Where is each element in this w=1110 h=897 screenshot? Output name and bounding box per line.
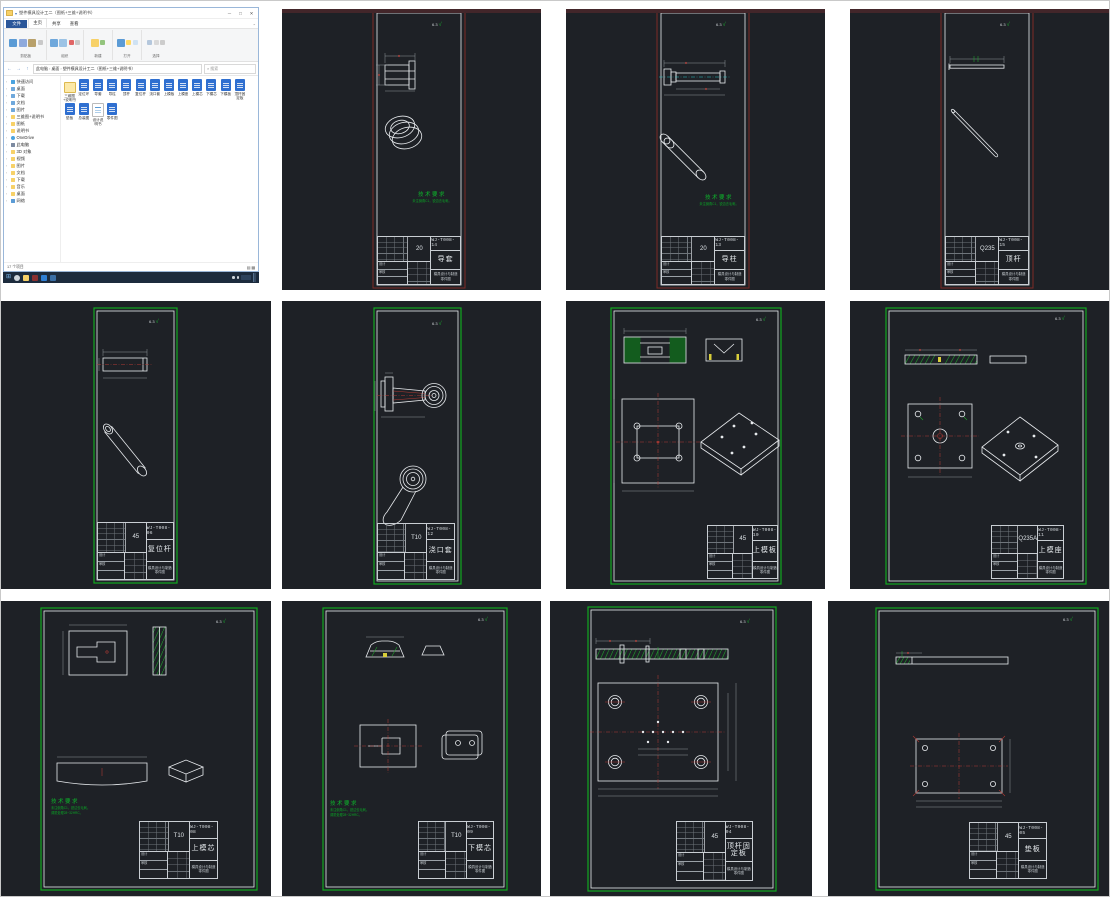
drawing-number: WJ-T008-15 [999,237,1028,251]
chevron-icon[interactable]: › [6,129,9,133]
nav-item[interactable]: › 桌面 [6,85,60,92]
section-view-1 [624,337,686,363]
nav-item-label: 快速访问 [17,79,34,85]
nav-item-label: 视频 [17,156,25,162]
search-input[interactable]: ⌕ 搜索 [204,64,256,74]
chevron-icon[interactable]: › [6,136,9,140]
folder-icon [11,178,16,182]
open-icon[interactable] [126,40,131,45]
profile-view [57,757,147,785]
organization: 模具设计与制造零件图 [715,270,744,284]
item-count: 17 个项目 [7,265,24,270]
folder-icon [11,108,16,112]
material-cell: T10 [406,524,426,552]
nav-item-label: 桌面 [17,191,25,197]
drawing-canvas [282,601,541,897]
ribbon-group-label: 选择 [152,54,159,59]
maximize-button[interactable]: □ [236,9,245,18]
folder-icon [11,164,16,168]
nav-item-label: 图片 [17,107,25,113]
plan-view [901,397,979,477]
title-block: 45 设计审核 WJ-T008-10 上模板 模具设计与制造零件图 [707,525,778,579]
folder-icon [11,143,16,147]
file-item[interactable]: 三维图+说明书 [63,79,76,102]
navigation-pane: › 快速访问 › 桌面 › 下载 › 文档 [4,76,61,262]
file-name: 复位杆 [135,92,146,96]
file-name: 上模座 [178,92,189,96]
search-icon[interactable] [14,275,20,281]
technical-notes: 技术要求 未注倒角C1，锐边去毛刺。 [696,193,742,206]
chevron-icon[interactable]: › [6,178,9,182]
organization: 模具设计与制造零件图 [753,562,777,578]
tray-icon[interactable] [237,276,240,279]
material-cell: T10 [169,822,189,851]
window-edge [566,9,825,13]
file-name: 下模芯 [206,92,217,96]
chevron-icon[interactable]: › [6,150,9,154]
nav-item[interactable]: › 此电脑 [6,141,60,148]
file-icon [235,79,245,91]
tray-icon[interactable] [232,276,235,279]
folder-icon [11,136,16,140]
nav-item[interactable]: › 快速访问 [6,78,60,85]
nav-item[interactable]: › 图片 [6,106,60,113]
file-item[interactable]: 导套 [91,79,104,96]
forward-button[interactable]: → [15,66,22,72]
nav-item[interactable]: › 图片 [6,162,60,169]
organization: 模具设计与制造零件图 [431,270,460,284]
paste-icon[interactable] [28,39,36,47]
plan-view [614,393,700,491]
start-button[interactable]: ⊞ [6,272,11,283]
surface-roughness-mark: 6.3√ [432,321,442,327]
title-block: 45 设计审核 WJ-T008-06 复位杆 模具设计与制造零件图 [97,522,174,580]
iso-view [102,422,149,477]
cad-sheet-fuweigan: 6.3√ 45 设计审核 WJ-T008-06 复位杆 模具设计与制造零件图 [1,301,271,589]
part-name: 下模芯 [467,839,493,861]
organization: 模具设计与制造零件图 [467,861,493,878]
window-edge [282,9,541,13]
search-placeholder: 搜索 [210,66,218,72]
chevron-right-icon: › [49,66,50,71]
nav-item-label: 文档 [17,100,25,106]
section-strip-2 [990,356,1026,363]
nav-item[interactable]: › 图纸 [6,120,60,127]
chevron-icon[interactable]: › [6,199,9,203]
material-cell: 45 [705,822,725,852]
nav-item-label: 桌面 [17,86,25,92]
breadcrumb[interactable]: 桌面 [51,66,59,72]
new-item-icon[interactable] [100,40,105,45]
title-block: T10 设计审核 WJ-T008-12 浇口套 模具设计与制造零件图 [377,523,455,580]
surface-roughness-mark: 6.3√ [1000,22,1010,28]
file-icon [65,103,75,115]
browser-icon[interactable] [41,275,47,281]
material-cell: 20 [408,237,430,261]
search-icon: ⌕ [207,66,209,71]
part-name: 导柱 [715,251,744,270]
chevron-icon[interactable]: › [6,171,9,175]
copy-icon[interactable] [19,39,27,47]
quick-access-toolbar[interactable]: ▾ [15,11,17,16]
surface-roughness-mark: 6.3√ [216,619,226,625]
title-block: Q235A 设计审核 WJ-T008-11 上模座 模具设计与制造零件图 [991,525,1064,579]
drawing-canvas [850,301,1110,589]
iso-view [442,731,482,759]
screenshot-collage: ▾ 塑件模具设计工二（图纸+三维+说明书） ─ □ ✕ 文件 主页 共享 查看 … [0,0,1110,897]
cad-sheet-dianban: 6.3√ 45 设计审核 WJ-T008-05 垫板 模具设计与制造零件图 [828,601,1110,897]
chevron-icon[interactable]: › [6,192,9,196]
cad-sheet-shangmoban: 6.3√ 45 设计审核 WJ-T008-10 上模板 模具设计与制造零件图 [566,301,825,589]
folder-icon [11,94,16,98]
plan-view [63,625,127,675]
iso-view [658,132,708,182]
close-button[interactable]: ✕ [247,9,256,18]
minimize-button[interactable]: ─ [225,9,234,18]
technical-notes: 技术要求 未注倒角C1，锐边去毛刺。 调质处理28~32HRC。 [51,797,131,815]
title-block: 45 设计审核 WJ-T008-04 顶杆固定板 模具设计与制造零件图 [676,821,753,881]
status-bar: 17 个项目 ▤ ▦ [4,262,258,271]
edit-icon[interactable] [133,40,138,45]
nav-item-label: 此电脑 [17,142,30,148]
material-cell: 45 [998,823,1018,851]
explorer-taskbar-icon[interactable] [23,275,29,281]
file-icon [64,82,76,93]
technical-notes: 技术要求 未注倒角C1，锐边去毛刺。 [408,190,456,203]
file-item[interactable]: 下模芯 [205,79,218,96]
iso-view [169,760,203,782]
profile-view-1 [366,637,404,657]
file-item[interactable]: 总装图 [77,103,90,120]
ribbon-group-label: 剪贴板 [20,54,31,59]
section-view-2 [706,339,742,361]
nav-item[interactable]: › OneDrive [6,134,60,141]
move-to-icon[interactable] [50,39,58,47]
file-item[interactable]: 顶杆 [120,79,133,96]
chevron-icon[interactable]: › [6,87,9,91]
file-item[interactable]: 垫板 [63,103,76,120]
file-name: 零件图 [107,116,118,120]
profile-view-2 [422,646,444,655]
file-item[interactable]: 上模芯 [191,79,204,96]
select-all-icon[interactable] [147,40,152,45]
file-name: 设计说明书 [91,118,104,126]
rename-icon[interactable] [75,40,80,45]
file-item[interactable]: 下模板 [219,79,232,96]
surface-roughness-mark: 6.3√ [716,22,726,28]
drawing-number: WJ-T008-08 [190,822,217,839]
cad-sheet-shangmozuo: 6.3√ Q235A 设计审核 WJ-T008-11 上模座 模具设计与制造零件… [850,301,1110,589]
nav-item-label: 3D 对象 [17,149,32,155]
cad-sheet-shangmoxin: 6.3√ 技术要求 未注倒角C1，锐边去毛刺。 调质处理28~32HRC。 T1… [1,601,271,897]
file-icon [178,79,188,91]
drawing-number: WJ-T008-05 [1019,823,1046,839]
part-name: 上模芯 [190,839,217,861]
file-icon [206,79,216,91]
file-name: 顶杆 [123,92,130,96]
chevron-right-icon: › [60,66,61,71]
section-strip-1 [905,349,977,364]
cad-sheet-dinggan: 6.3√ Q235 设计审核 WJ-T008-15 顶杆 模具设计与制造零件图 [850,9,1110,290]
part-name: 浇口套 [427,540,454,562]
file-name: 导柱 [109,92,116,96]
breadcrumb[interactable]: 塑件模具设计工二（图纸+三维+说明书） [63,66,136,72]
chevron-icon[interactable]: › [6,115,9,119]
section-view [596,638,728,663]
ribbon-group-clipboard: 剪贴板 [6,30,47,60]
organization: 模具设计与制造零件图 [427,562,454,579]
iso-view [951,109,998,157]
address-row: ← → ↑ 此电脑 › 桌面 › 塑件模具设计工二（图纸+三维+说明书） ⌕ 搜… [4,62,258,76]
drawing-number: WJ-T008-06 [147,523,173,540]
file-icon [136,79,146,91]
folder-icon [11,185,16,189]
drawing-number: WJ-T008-13 [715,237,744,251]
file-item[interactable]: 上模板 [162,79,175,96]
chevron-icon[interactable]: › [6,80,9,84]
chevron-icon[interactable]: › [6,164,9,168]
nav-item-label: 音乐 [17,184,25,190]
file-icon [164,79,174,91]
iso-view [701,413,779,475]
copy-to-icon[interactable] [59,39,67,47]
properties-icon[interactable] [117,39,125,47]
file-item[interactable]: 复位杆 [134,79,147,96]
side-view [153,627,166,675]
cad-sheet-daozhu: 6.3√ 技术要求 未注倒角C1，锐边去毛刺。 20 设计审核 WJ-T008-… [566,9,825,290]
folder-icon [11,80,16,84]
ribbon-group-open: 打开 [113,30,142,60]
nav-item[interactable]: › 文档 [6,169,60,176]
ribbon-group-organize: 组织 [47,30,85,60]
nav-item[interactable]: › 文档 [6,99,60,106]
new-folder-icon[interactable] [91,39,99,47]
ribbon-group-label: 新建 [94,54,101,59]
drawing-number: WJ-T008-12 [427,524,454,540]
organization: 模具设计与制造零件图 [1019,861,1046,878]
folder-icon [11,157,16,161]
file-item[interactable]: 顶杆固定板 [233,79,246,100]
file-icon [107,103,117,115]
title-block: T10 设计审核 WJ-T008-08 上模芯 模具设计与制造零件图 [139,821,218,879]
file-item[interactable]: 浇口套 [148,79,161,96]
organization: 模具设计与制造零件图 [999,270,1028,284]
file-item[interactable]: 导柱 [106,79,119,96]
nav-item-label: 下载 [17,93,25,99]
chevron-icon[interactable]: › [6,108,9,112]
plan-view [590,675,736,796]
organization: 模具设计与制造零件图 [190,861,217,878]
file-name: 三维图+说明书 [63,94,76,102]
nav-item-label: 文档 [17,170,25,176]
nav-item[interactable]: › 下载 [6,92,60,99]
invert-selection-icon[interactable] [160,40,165,45]
material-cell: 45 [126,523,146,552]
folder-icon [11,150,16,154]
address-bar[interactable]: 此电脑 › 桌面 › 塑件模具设计工二（图纸+三维+说明书） [33,64,202,74]
drawing-canvas [566,301,825,589]
up-button[interactable]: ↑ [24,66,31,72]
cad-app-icon[interactable] [32,275,38,281]
file-icon [79,79,89,91]
ribbon-group-new: 新建 [84,30,113,60]
file-icon [92,103,104,117]
surface-roughness-mark: 6.3√ [1055,316,1065,322]
front-view [381,377,425,411]
nav-item[interactable]: › 网络 [6,197,60,204]
clock[interactable] [241,275,251,280]
show-desktop-button[interactable] [253,273,256,282]
cad-sheet-dingganguban: 6.3√ 45 设计审核 WJ-T008-04 顶杆固定板 模具设计与制造零件图 [550,601,812,897]
chevron-icon[interactable]: › [6,185,9,189]
cad-sheet-jiaokoutao: 6.3√ T10 设计审核 WJ-T008-12 浇口套 模具设计与制造零件图 [282,301,541,589]
part-name: 导套 [431,251,460,270]
technical-notes: 技术要求 未注倒角C1，锐边去毛刺。 调质处理28~32HRC。 [330,799,410,817]
part-name: 复位杆 [147,540,173,562]
drawing-number: WJ-T008-04 [726,822,752,839]
material-cell: 45 [734,526,752,553]
view-toggle-icons[interactable]: ▤ ▦ [247,265,255,270]
file-item[interactable]: 定位环 [77,79,90,96]
drawing-number: WJ-T008-11 [1038,526,1063,541]
file-icon [150,79,160,91]
iso-view [383,466,426,525]
surface-roughness-mark: 6.3√ [149,319,159,325]
title-block: Q235 设计审核 WJ-T008-15 顶杆 模具设计与制造零件图 [945,236,1029,285]
breadcrumb[interactable]: 此电脑 [36,66,48,72]
drawing-number: WJ-T008-09 [467,822,493,839]
file-icon [221,79,231,91]
front-view [949,64,1004,71]
folder-icon [11,199,16,203]
folder-icon [11,192,16,196]
file-item[interactable]: 零件图 [106,103,119,120]
folder-icon [11,87,16,91]
nav-item-label: 三维图+说明书 [17,114,45,120]
nav-item-label: OneDrive [17,135,35,140]
cut-icon[interactable] [38,40,43,45]
chevron-icon[interactable]: › [6,122,9,126]
drawing-number: WJ-T008-14 [431,237,460,251]
part-name: 顶杆 [999,251,1028,270]
iso-view [982,417,1058,481]
nav-item[interactable]: › 3D 对象 [6,148,60,155]
surface-roughness-mark: 6.3√ [432,22,442,28]
folder-icon [11,122,16,126]
nav-item[interactable]: › 下载 [6,176,60,183]
surface-roughness-mark: 6.3√ [1063,617,1073,623]
part-name: 上模板 [753,541,777,561]
file-list: 三维图+说明书 定位环 导套 导柱 顶杆 [61,76,258,262]
chevron-up-icon[interactable]: ⌃ [253,23,256,28]
nav-item[interactable]: › 说明书 [6,127,60,134]
file-icon [107,79,117,91]
title-block: 20 设计审核 WJ-T008-14 导套 模具设计与制造零件图 [377,236,461,285]
file-name: 浇口套 [149,92,160,96]
file-icon [93,79,103,91]
file-name: 顶杆固定板 [233,92,246,100]
plan-view [354,719,422,773]
folder-icon [6,10,13,16]
file-name: 总装图 [78,116,89,120]
pin-icon[interactable] [9,39,17,47]
part-name: 顶杆固定板 [726,839,752,862]
drawing-canvas [1,601,271,897]
chevron-icon[interactable]: › [6,157,9,161]
file-name: 导套 [94,92,101,96]
folder-icon [11,101,16,105]
nav-item[interactable]: › 音乐 [6,183,60,190]
iso-view [383,113,425,152]
file-name: 垫板 [66,116,73,120]
section-view [896,651,1008,664]
ribbon: 剪贴板 组织 新建 [4,29,258,62]
ribbon-group-label: 打开 [123,54,130,59]
cad-sheet-xiamoxin: 6.3√ 技术要求 未注倒角C1，锐边去毛刺。 调质处理28~32HRC。 T1… [282,601,541,897]
desktop-screenshot: ▾ 塑件模具设计工二（图纸+三维+说明书） ─ □ ✕ 文件 主页 共享 查看 … [3,7,259,283]
file-item[interactable]: 上模座 [177,79,190,96]
file-icon [121,79,131,91]
chevron-icon[interactable]: › [6,101,9,105]
tab-share[interactable]: 共享 [48,20,65,28]
tab-file[interactable]: 文件 [6,20,27,28]
delete-icon[interactable] [69,40,74,45]
file-name: 定位环 [78,92,89,96]
tab-view[interactable]: 查看 [66,20,83,28]
plan-view [910,733,1010,807]
material-cell: Q235A [1018,526,1037,553]
word-icon[interactable] [50,275,56,281]
nav-item[interactable]: › 三维图+说明书 [6,113,60,120]
nav-item-label: 网络 [17,198,25,204]
part-name: 上模座 [1038,541,1063,561]
chevron-icon[interactable]: › [6,143,9,147]
nav-item[interactable]: › 视频 [6,155,60,162]
file-name: 下模板 [220,92,231,96]
folder-icon [11,129,16,133]
organization: 模具设计与制造零件图 [1038,562,1063,578]
title-block: 20 设计审核 WJ-T008-13 导柱 模具设计与制造零件图 [661,236,745,285]
folder-icon [11,115,16,119]
surface-roughness-mark: 6.3√ [756,317,766,323]
nav-item-label: 图纸 [17,121,25,127]
part-name: 垫板 [1019,839,1046,861]
tab-home[interactable]: 主页 [28,18,47,28]
select-none-icon[interactable] [154,40,159,45]
file-item[interactable]: 设计说明书 [91,103,104,126]
file-name: 上模芯 [192,92,203,96]
nav-item-label: 说明书 [17,128,30,134]
material-cell: 20 [692,237,714,261]
surface-roughness-mark: 6.3√ [740,619,750,625]
chevron-icon[interactable]: › [6,94,9,98]
ribbon-tabs: 文件 主页 共享 查看 ⌃ [4,19,258,29]
window-edge [850,9,1110,13]
material-cell: Q235 [976,237,998,261]
file-name: 上模板 [164,92,175,96]
nav-item-label: 下载 [17,177,25,183]
folder-icon [11,171,16,175]
organization: 模具设计与制造零件图 [726,862,752,880]
system-tray[interactable] [232,273,256,282]
ribbon-group-select: 选择 [142,30,170,60]
taskbar[interactable]: ⊞ [3,272,259,283]
nav-item[interactable]: › 桌面 [6,190,60,197]
section-view [385,61,415,89]
file-icon [192,79,202,91]
file-icon [79,103,89,115]
back-button[interactable]: ← [6,66,13,72]
